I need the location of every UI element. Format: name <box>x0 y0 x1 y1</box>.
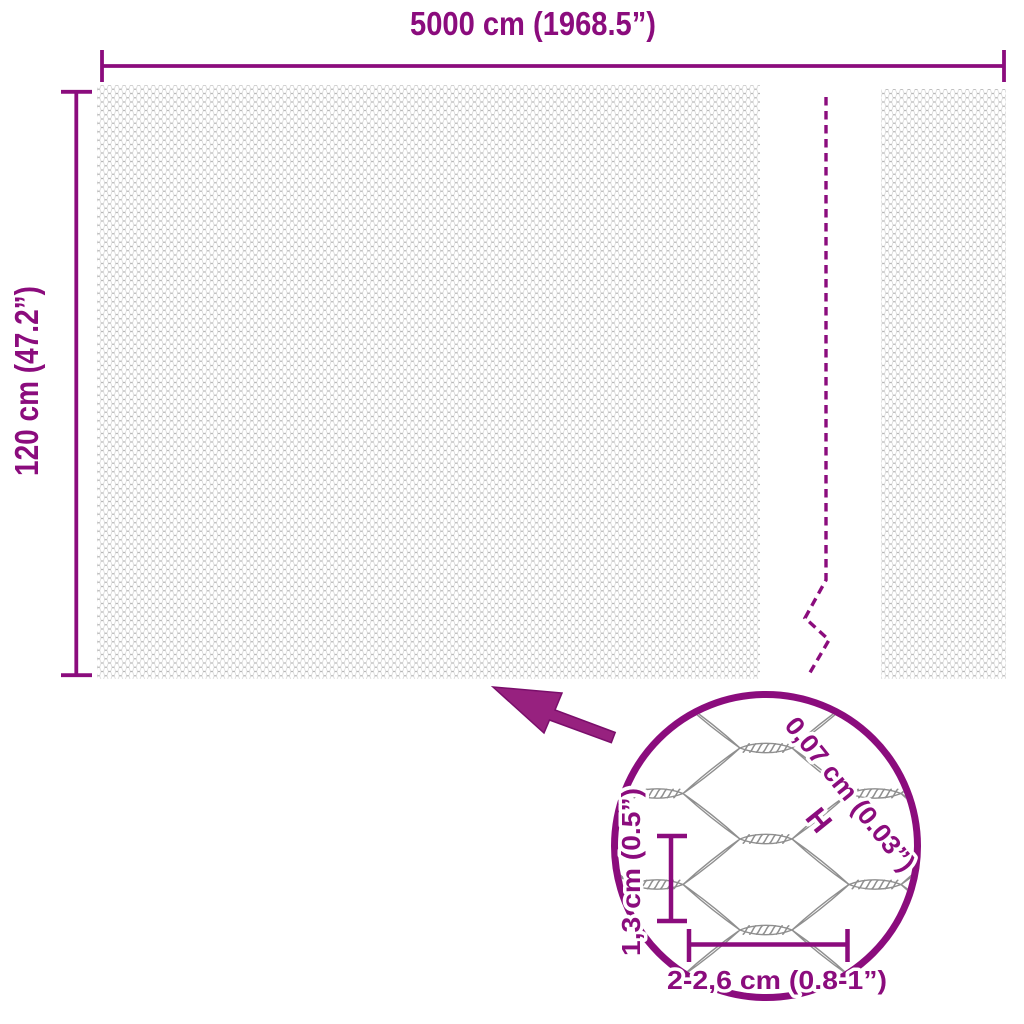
svg-text:2-2,6 cm (0.8-1”): 2-2,6 cm (0.8-1”) <box>667 965 887 995</box>
svg-text:5000 cm (1968.5”): 5000 cm (1968.5”) <box>410 5 656 42</box>
svg-text:120 cm (47.2”): 120 cm (47.2”) <box>8 286 45 476</box>
svg-text:1,3 cm (0.5”): 1,3 cm (0.5”) <box>616 788 646 956</box>
